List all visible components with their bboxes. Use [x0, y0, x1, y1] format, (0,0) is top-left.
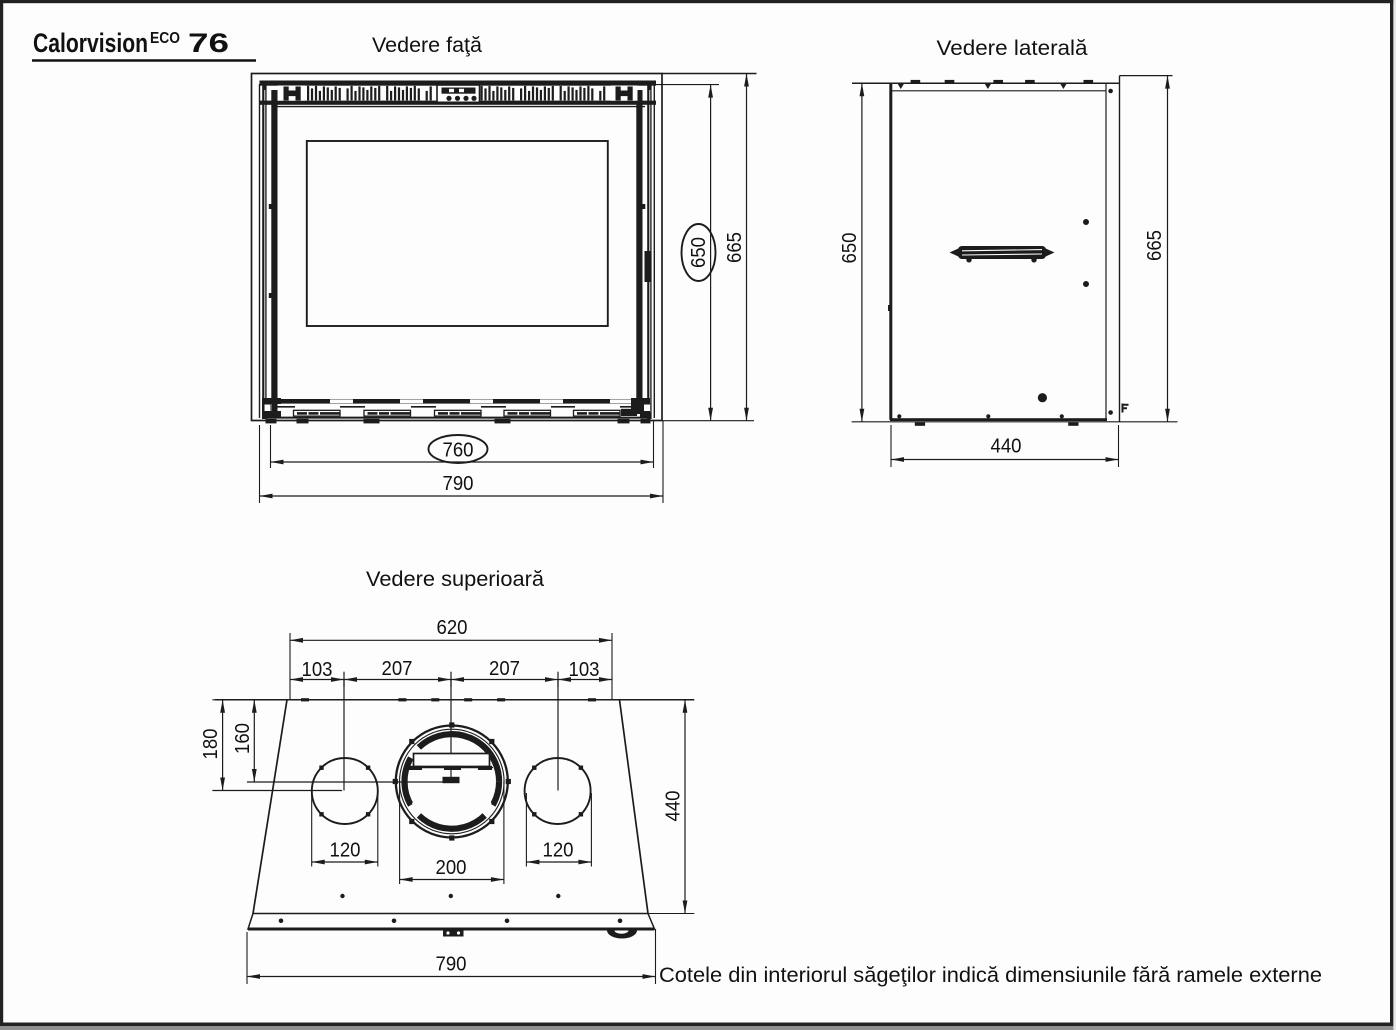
svg-text:Calorvision: Calorvision	[33, 28, 148, 58]
svg-text:207: 207	[382, 657, 413, 680]
svg-text:103: 103	[569, 658, 600, 681]
svg-text:665: 665	[723, 232, 746, 263]
svg-text:207: 207	[489, 657, 520, 680]
svg-text:665: 665	[1143, 230, 1166, 261]
svg-text:440: 440	[662, 791, 685, 822]
svg-text:120: 120	[330, 839, 361, 862]
svg-text:76: 76	[188, 28, 229, 58]
svg-text:440: 440	[991, 435, 1022, 458]
svg-text:120: 120	[543, 839, 574, 862]
svg-text:ECO: ECO	[150, 30, 180, 47]
svg-text:620: 620	[437, 616, 468, 639]
svg-text:Vedere faţă: Vedere faţă	[372, 33, 482, 57]
svg-text:650: 650	[838, 233, 861, 264]
svg-text:Vedere laterală: Vedere laterală	[937, 36, 1088, 60]
svg-text:Vedere superioară: Vedere superioară	[366, 567, 544, 591]
svg-text:760: 760	[443, 439, 474, 462]
svg-text:160: 160	[231, 723, 254, 754]
svg-text:103: 103	[302, 658, 333, 681]
svg-text:650: 650	[687, 237, 710, 268]
svg-text:790: 790	[443, 472, 474, 495]
svg-text:790: 790	[436, 953, 467, 976]
svg-text:200: 200	[436, 856, 467, 879]
svg-text:Cotele din interiorul săgeţilo: Cotele din interiorul săgeţilor indică d…	[659, 963, 1322, 987]
svg-text:180: 180	[199, 729, 222, 760]
